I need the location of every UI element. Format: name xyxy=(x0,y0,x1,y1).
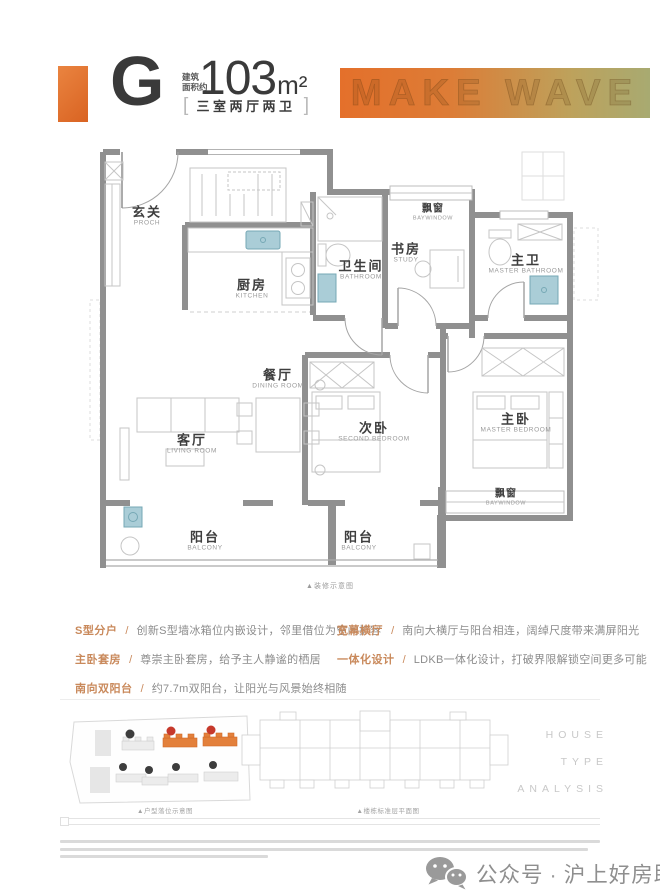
master-bedroom-furniture xyxy=(473,348,564,468)
second-bedroom-furniture xyxy=(310,362,380,475)
flyer-page: G 建筑 面积约 103 m² [ 三室两厅两卫 ] MAKE WAVE xyxy=(0,0,660,896)
bracket-right: ] xyxy=(304,97,309,115)
bracket-left: [ xyxy=(183,97,188,115)
features-right: 宽幕横厅 / 南向大横厅与阳台相连，阔绰尺度带来满屏阳光 一体化设计 / LDK… xyxy=(337,622,647,680)
accent-block-left xyxy=(58,66,88,122)
room-label-baywindow-master: 飘窗 BAYWINDOW xyxy=(486,489,526,508)
coat-closet xyxy=(190,168,286,222)
makewave-banner: MAKE WAVE xyxy=(340,68,650,118)
plan-caption: ▲装修示意图 xyxy=(306,581,354,591)
floor-plate-caption: ▲楼栋标准层平面图 xyxy=(357,805,420,815)
wechat-account: 公众号·沪上好房助手 xyxy=(476,858,660,889)
ruler-endcap xyxy=(60,817,69,826)
room-label-bathroom: 卫生间 BATHROOM xyxy=(338,259,383,282)
section-divider xyxy=(60,699,600,700)
floor-plate-diagram xyxy=(242,711,508,788)
porch-closet xyxy=(105,162,123,286)
room-label-second-bedroom: 次卧 SECOND BEDROOM xyxy=(338,421,410,444)
disclaimer-line xyxy=(60,840,600,843)
room-label-baywindow-study: 飘窗 BAYWINDOW xyxy=(413,204,453,223)
analysis-wordmark: HOUSE TYPE ANALYSIS xyxy=(517,722,608,803)
site-plan-caption: ▲户型落位示意图 xyxy=(137,805,193,815)
room-label-master-bathroom: 主卫 MASTER BATHROOM xyxy=(489,253,564,276)
bathroom-fixtures xyxy=(318,197,382,302)
balcony-items xyxy=(121,507,430,559)
scale-ruler xyxy=(60,818,600,825)
layout-label: 三室两厅两卫 xyxy=(196,96,295,115)
wechat-icon xyxy=(424,855,468,891)
feature-item: 主卧套房 / 尊崇主卧套房，给予主人静谧的栖居 xyxy=(75,651,381,667)
disclaimer-line xyxy=(60,848,588,851)
wall-piers xyxy=(328,487,446,568)
feature-item: S型分户 / 创新S型墙冰箱位内嵌设计，邻里借位为空间扩容 xyxy=(75,622,381,638)
room-label-living: 客厅 LIVING ROOM xyxy=(167,433,217,456)
feature-item: 南向双阳台 / 约7.7m双阳台，让阳光与风景始终相随 xyxy=(75,680,381,696)
wechat-footer: 公众号·沪上好房助手 xyxy=(424,855,660,891)
kitchen-sink xyxy=(246,231,280,249)
feature-item: 一体化设计 / LDKB一体化设计，打破界限解锁空间更多可能 xyxy=(337,651,647,667)
room-label-porch: 玄关 PROCH xyxy=(132,205,162,228)
room-label-dining: 餐厅 DINING ROOM xyxy=(252,368,303,391)
feature-item: 宽幕横厅 / 南向大横厅与阳台相连，阔绰尺度带来满屏阳光 xyxy=(337,622,647,638)
room-label-balcony-right: 阳台 BALCONY xyxy=(341,530,376,553)
exterior-extras xyxy=(90,152,598,440)
features-left: S型分户 / 创新S型墙冰箱位内嵌设计，邻里借位为空间扩容 主卧套房 / 尊崇主… xyxy=(75,622,381,709)
makewave-watermark-text: MAKE WAVE xyxy=(351,72,639,114)
site-plan-diagram xyxy=(70,716,250,803)
layout-summary: [ 三室两厅两卫 ] xyxy=(183,96,309,115)
room-label-study: 书房 STUDY xyxy=(391,242,421,265)
room-label-master-bedroom: 主卧 MASTER BEDROOM xyxy=(481,412,552,435)
disclaimer-line xyxy=(60,855,268,858)
room-label-balcony-left: 阳台 BALCONY xyxy=(187,530,222,553)
study-desk xyxy=(415,250,464,288)
entry-door xyxy=(120,147,178,208)
room-label-kitchen: 厨房 KITCHEN xyxy=(236,278,269,301)
unit-type-letter: G xyxy=(110,46,164,116)
